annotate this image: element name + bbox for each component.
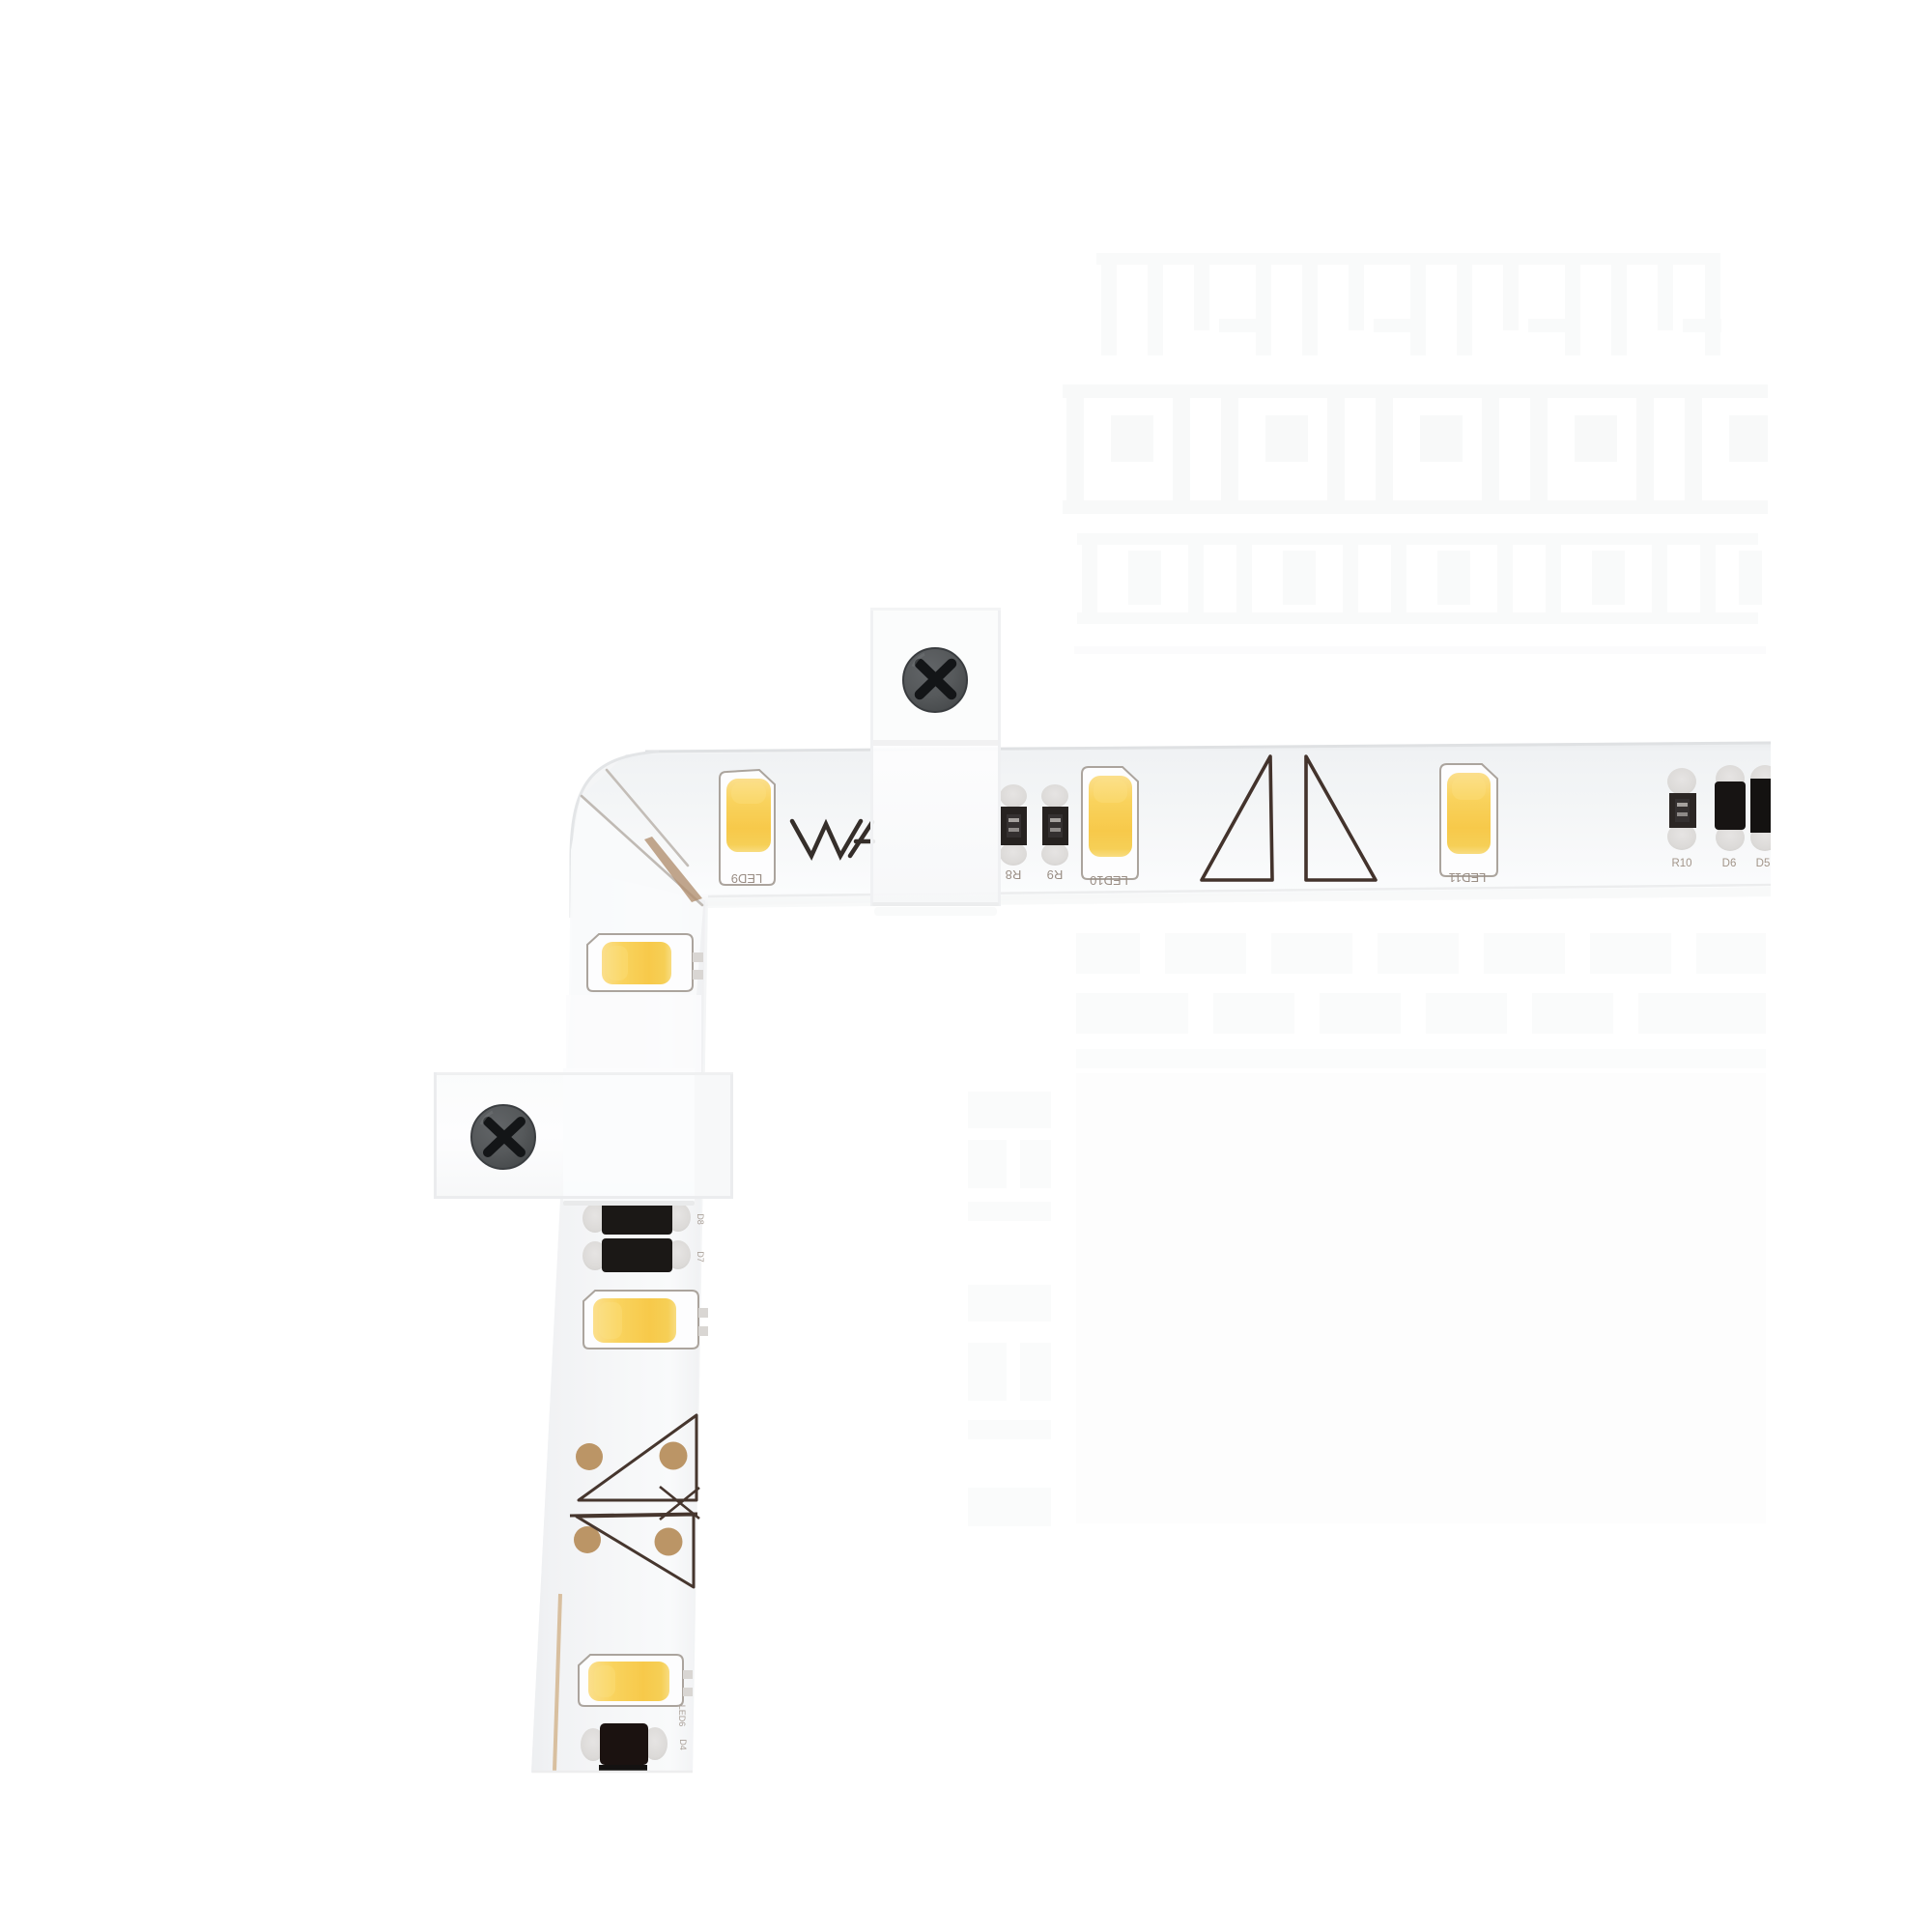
svg-text:LED9: LED9 [731, 871, 763, 886]
svg-text:R8: R8 [1006, 867, 1022, 882]
svg-text:LED6: LED6 [677, 1705, 687, 1727]
svg-text:D5: D5 [1756, 858, 1771, 869]
svg-text:D4: D4 [678, 1739, 688, 1750]
svg-text:LED10: LED10 [1090, 873, 1128, 888]
svg-text:R9: R9 [1047, 867, 1064, 882]
svg-text:D8: D8 [696, 1213, 705, 1225]
svg-text:D7: D7 [696, 1251, 705, 1263]
svg-text:R10: R10 [1671, 858, 1691, 869]
svg-text:D6: D6 [1722, 858, 1737, 869]
svg-text:LED11: LED11 [1449, 870, 1487, 885]
